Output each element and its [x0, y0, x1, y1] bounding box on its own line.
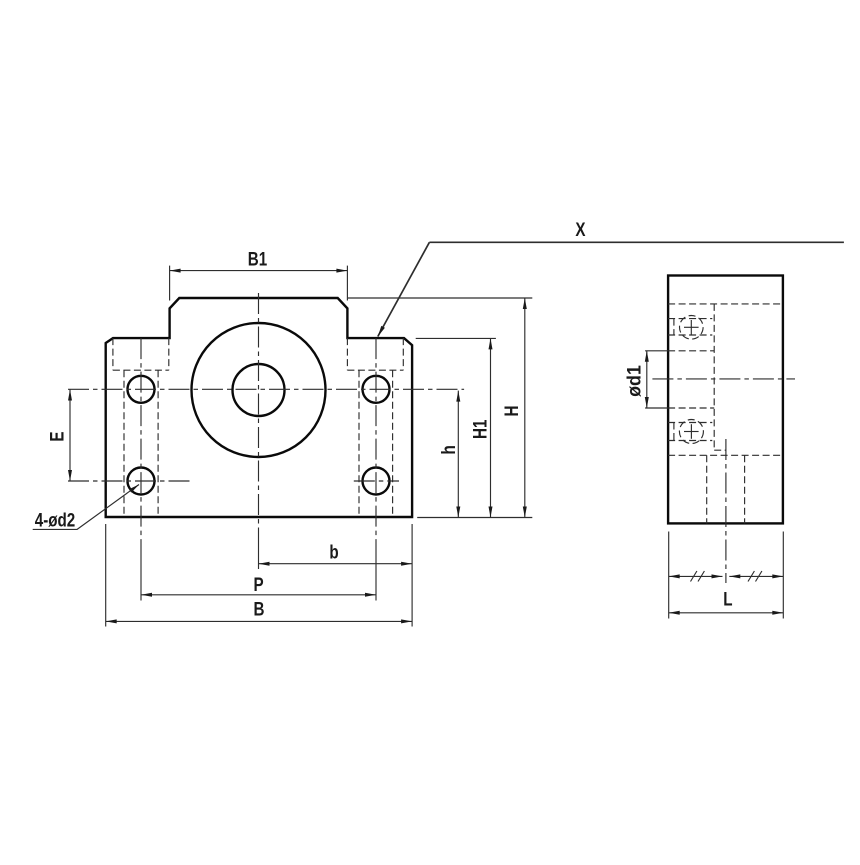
svg-text:B: B: [254, 598, 265, 620]
svg-text:H: H: [500, 406, 522, 417]
svg-text:L: L: [723, 588, 732, 610]
svg-text:b: b: [329, 541, 338, 563]
svg-text:4-ød2: 4-ød2: [35, 509, 76, 531]
svg-text:ød1: ød1: [623, 365, 645, 397]
svg-text:B1: B1: [248, 248, 268, 270]
svg-text:H1: H1: [469, 419, 491, 439]
svg-text:E: E: [46, 431, 68, 441]
svg-text:X: X: [575, 219, 586, 241]
svg-text:h: h: [438, 445, 460, 454]
svg-text:P: P: [254, 573, 264, 595]
